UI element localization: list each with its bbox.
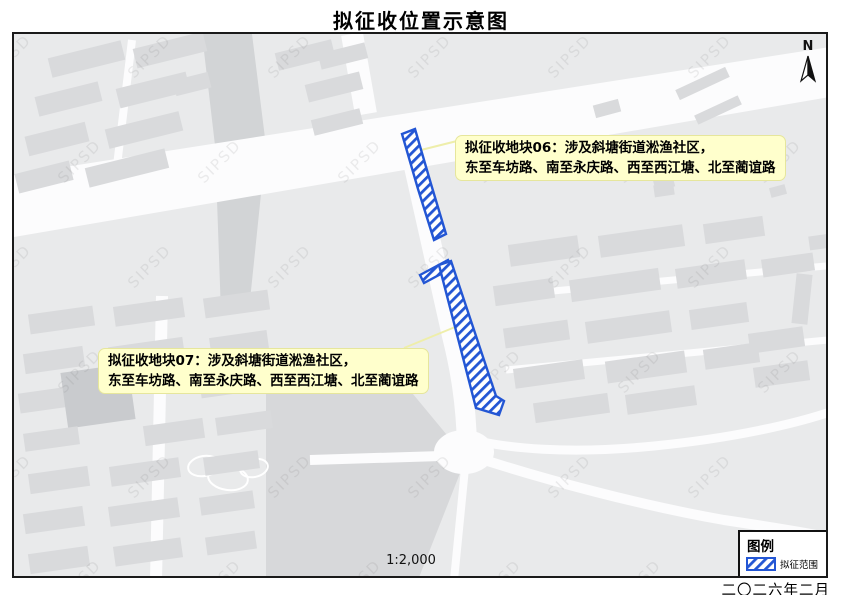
legend-item: 拟征范围 [746, 557, 826, 571]
map-canvas: SIPSDSIPSDSIPSDSIPSDSIPSDSIPSDSIPSDSIPSD… [12, 32, 828, 578]
legend-box: 图例 拟征范围 [738, 530, 826, 576]
annotation-06-line2: 东至车坊路、南至永庆路、西至西江塘、北至蔺谊路 [465, 158, 776, 178]
north-arrow: N [795, 40, 821, 88]
north-arrow-icon [799, 54, 817, 84]
annotation-block-07: 拟征收地块07：涉及斜塘街道淞渔社区， 东至车坊路、南至永庆路、西至西江塘、北至… [98, 348, 429, 394]
page: 拟征收位置示意图 [0, 0, 842, 595]
page-title: 拟征收位置示意图 [0, 5, 842, 34]
north-label: N [795, 40, 821, 54]
map-graphics: SIPSDSIPSDSIPSDSIPSDSIPSDSIPSDSIPSDSIPSD… [14, 34, 826, 576]
hatch-swatch-icon [746, 557, 776, 571]
annotation-block-06: 拟征收地块06：涉及斜塘街道淞渔社区， 东至车坊路、南至永庆路、西至西江塘、北至… [455, 135, 786, 181]
map-date: 二〇二六年二月 [722, 579, 831, 595]
annotation-07-line2: 东至车坊路、南至永庆路、西至西江塘、北至蔺谊路 [108, 371, 419, 391]
scale-text: 1:2,000 [366, 553, 456, 568]
legend-title: 图例 [747, 535, 826, 555]
annotation-06-line1: 拟征收地块06：涉及斜塘街道淞渔社区， [465, 138, 776, 158]
annotation-07-line1: 拟征收地块07：涉及斜塘街道淞渔社区， [108, 351, 419, 371]
legend-item-label: 拟征范围 [780, 557, 818, 571]
